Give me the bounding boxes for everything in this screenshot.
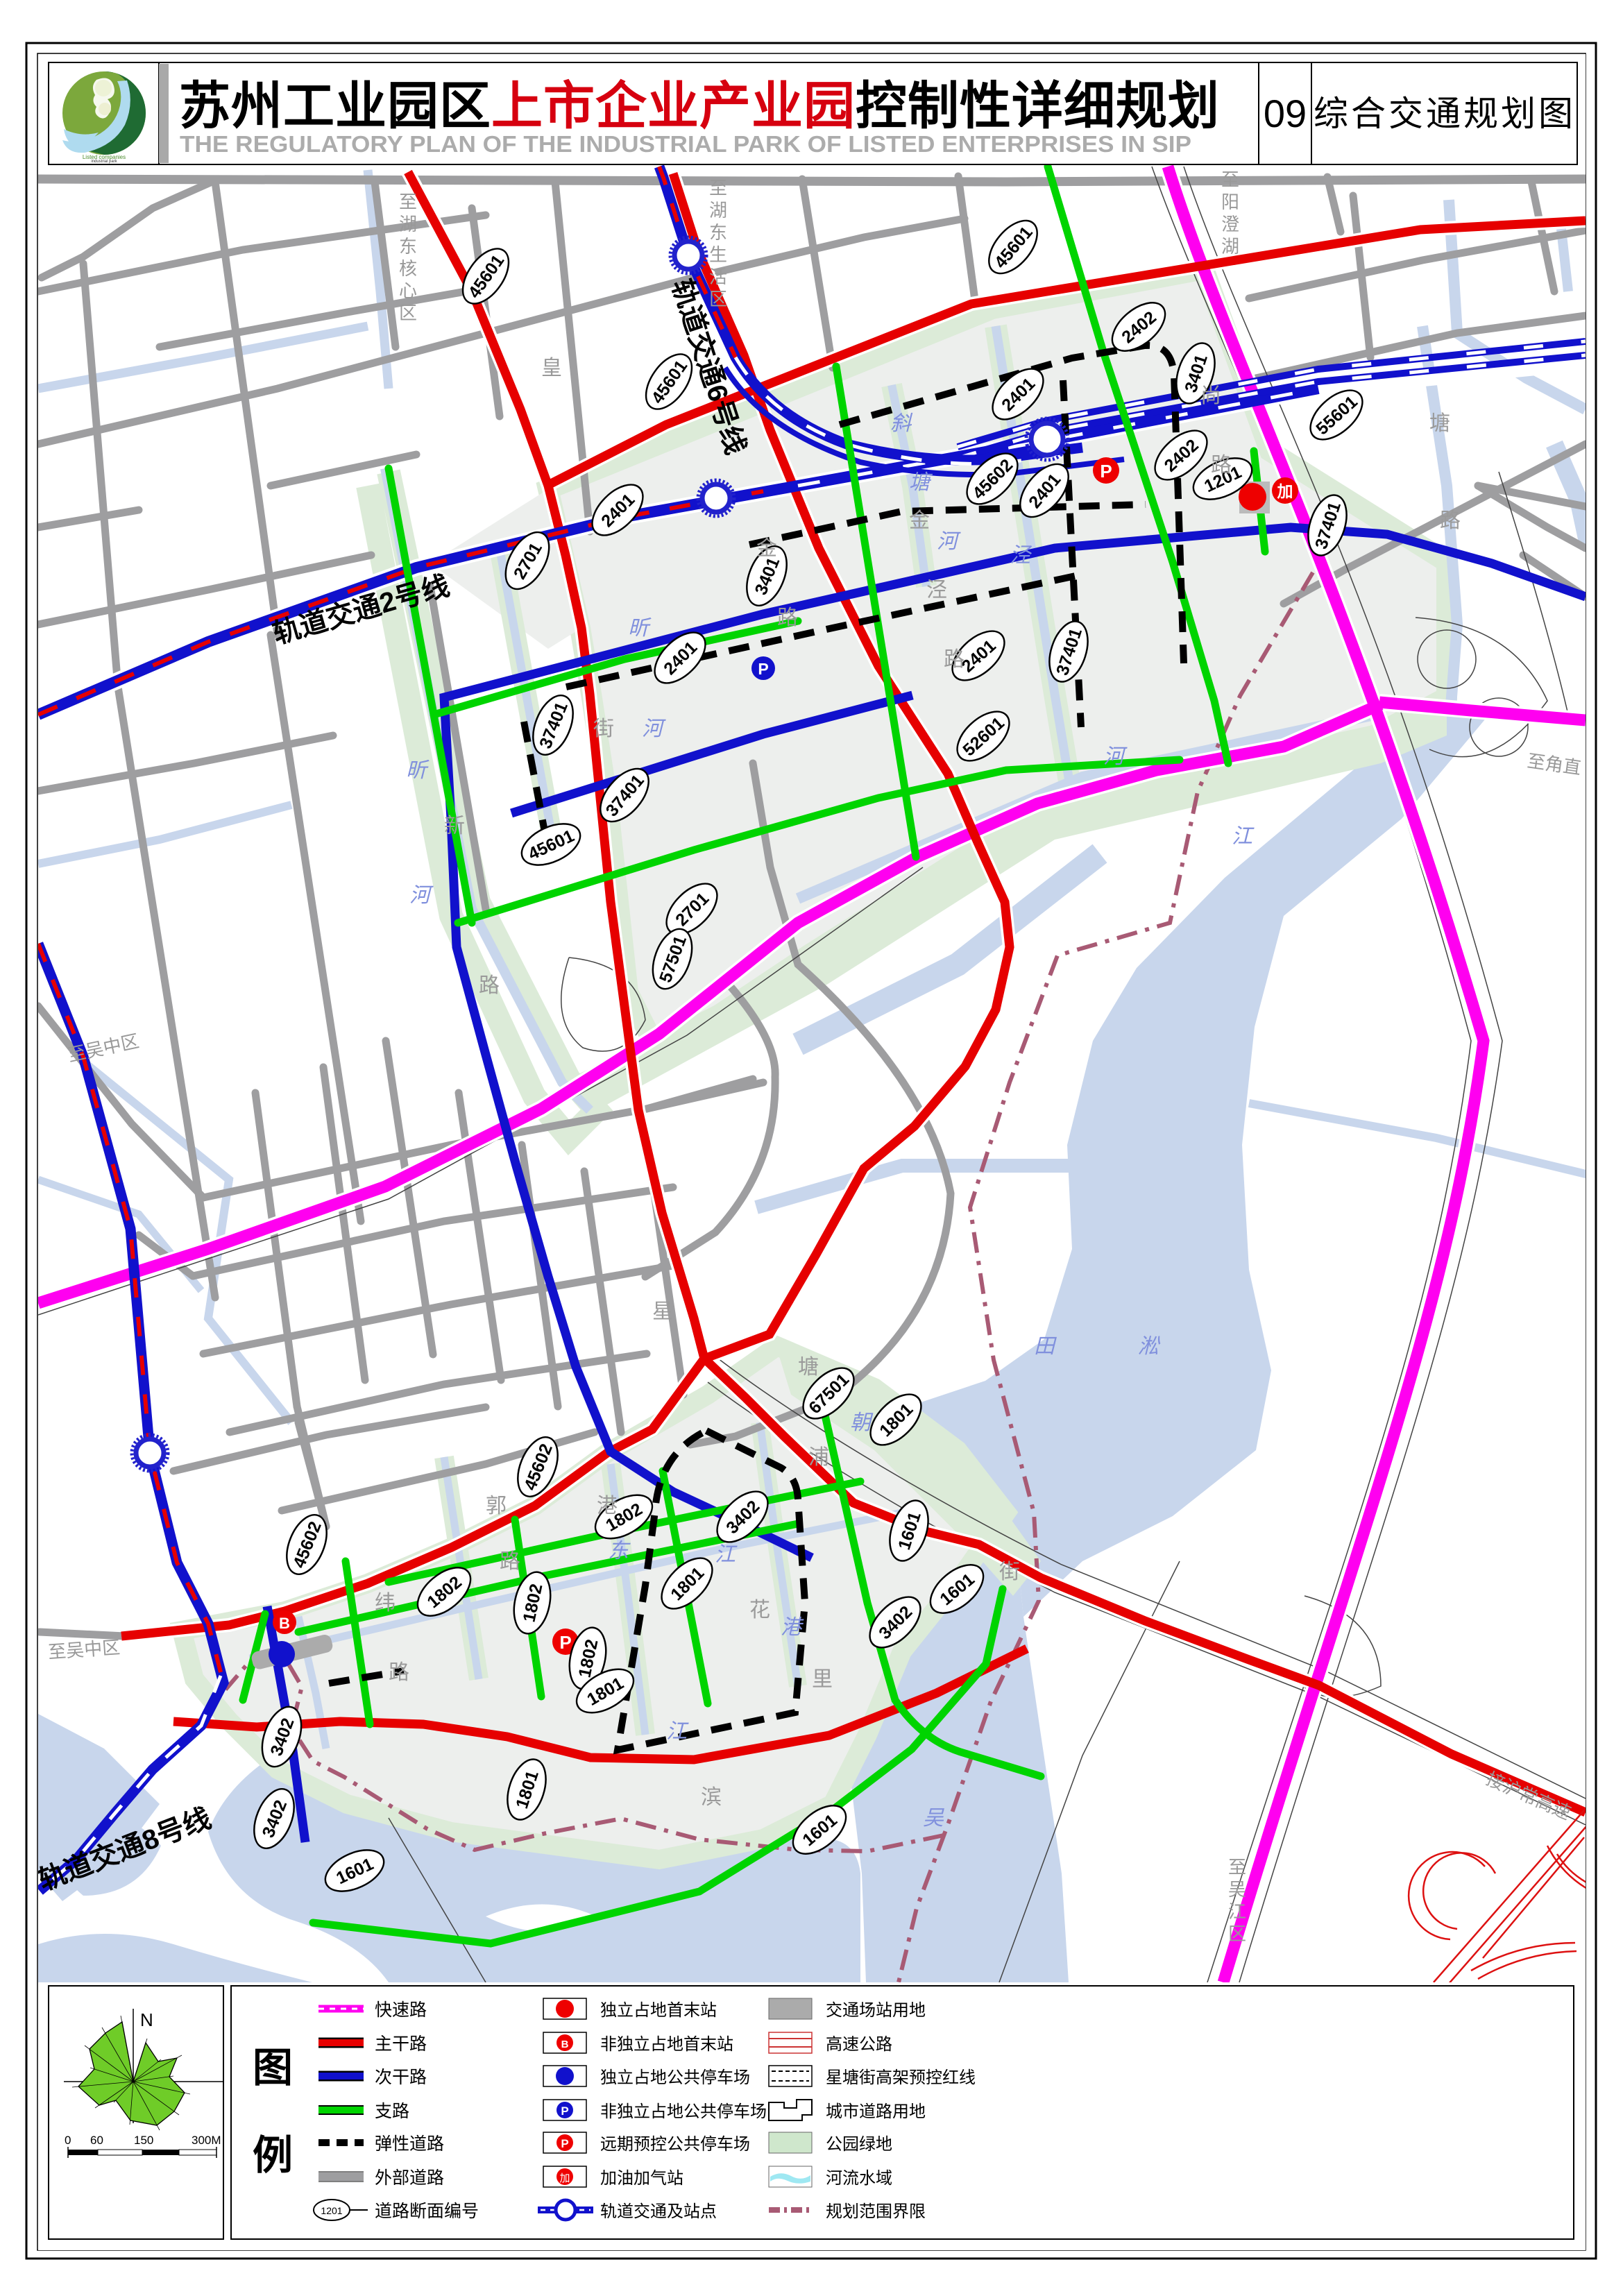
svg-text:0: 0: [65, 2134, 71, 2147]
svg-text:主干路: 主干路: [375, 2034, 427, 2054]
svg-text:尚: 尚: [1200, 384, 1221, 407]
svg-text:道路断面编号: 道路断面编号: [375, 2202, 479, 2221]
svg-text:淞: 淞: [1138, 1335, 1161, 1358]
svg-text:塘: 塘: [909, 471, 933, 494]
svg-text:轨道交通及站点: 轨道交通及站点: [600, 2202, 717, 2221]
svg-text:P: P: [1100, 461, 1112, 482]
svg-text:路: 路: [479, 974, 500, 997]
svg-text:快速路: 快速路: [375, 2000, 427, 2020]
svg-text:图: 图: [253, 2046, 293, 2091]
svg-text:支路: 支路: [375, 2102, 409, 2121]
svg-text:60: 60: [90, 2134, 103, 2147]
svg-text:远期预控公共停车场: 远期预控公共停车场: [600, 2135, 750, 2154]
svg-text:纬: 纬: [375, 1592, 396, 1615]
svg-text:昕: 昕: [628, 617, 652, 640]
svg-text:河: 河: [1103, 745, 1128, 768]
svg-text:路: 路: [777, 606, 798, 629]
svg-text:星塘街高架预控红线: 星塘街高架预控红线: [826, 2068, 976, 2087]
svg-text:田: 田: [1034, 1335, 1057, 1358]
svg-text:花: 花: [749, 1599, 770, 1622]
svg-text:港: 港: [781, 1616, 804, 1639]
svg-text:P: P: [561, 2104, 568, 2118]
svg-text:加油加气站: 加油加气站: [600, 2169, 683, 2188]
svg-text:独立占地公共停车场: 独立占地公共停车场: [600, 2068, 750, 2087]
svg-text:金: 金: [909, 509, 930, 532]
svg-text:P: P: [559, 1632, 571, 1653]
svg-text:塘: 塘: [798, 1356, 819, 1379]
svg-text:独立占地首末站: 独立占地首末站: [600, 2001, 717, 2020]
svg-text:外部道路: 外部道路: [375, 2168, 444, 2188]
svg-text:金: 金: [756, 537, 777, 560]
svg-text:B: B: [561, 2039, 569, 2050]
svg-text:P: P: [561, 2137, 568, 2150]
svg-text:朝: 朝: [850, 1411, 874, 1434]
svg-text:泾: 泾: [1010, 544, 1033, 567]
svg-text:皇: 皇: [541, 357, 562, 380]
svg-text:路: 路: [389, 1661, 409, 1684]
svg-text:09: 09: [1264, 92, 1307, 135]
svg-text:加: 加: [559, 2172, 570, 2184]
svg-text:次干路: 次干路: [375, 2068, 427, 2087]
svg-text:河: 河: [937, 530, 961, 553]
svg-text:公园绿地: 公园绿地: [826, 2135, 892, 2154]
svg-text:加: 加: [1277, 482, 1293, 500]
svg-text:P: P: [758, 660, 768, 678]
svg-text:里: 里: [812, 1668, 833, 1691]
svg-text:300M: 300M: [192, 2134, 221, 2147]
svg-text:例: 例: [253, 2133, 293, 2178]
svg-text:路: 路: [1211, 454, 1232, 477]
svg-text:泾: 泾: [926, 579, 947, 602]
svg-text:苏州工业园区上市企业产业园控制性详细规划: 苏州工业园区上市企业产业园控制性详细规划: [179, 77, 1220, 135]
svg-text:交通场站用地: 交通场站用地: [826, 2001, 926, 2020]
svg-text:路: 路: [500, 1550, 520, 1573]
svg-text:昕: 昕: [406, 759, 430, 782]
svg-text:斜: 斜: [890, 412, 913, 435]
svg-text:高速公路: 高速公路: [826, 2035, 892, 2054]
svg-text:江: 江: [666, 1720, 689, 1743]
svg-text:东: 东: [608, 1540, 631, 1563]
svg-text:郭: 郭: [486, 1495, 507, 1517]
svg-text:THE REGULATORY PLAN OF THE IND: THE REGULATORY PLAN OF THE INDUSTRIAL PA…: [180, 131, 1191, 157]
svg-text:河: 河: [409, 884, 434, 907]
svg-text:河: 河: [642, 717, 666, 740]
svg-text:非独立占地首末站: 非独立占地首末站: [600, 2035, 733, 2054]
svg-text:江: 江: [1232, 825, 1255, 848]
svg-text:非独立占地公共停车场: 非独立占地公共停车场: [600, 2102, 767, 2121]
svg-text:江: 江: [715, 1543, 738, 1566]
svg-text:industrial park: industrial park: [91, 160, 117, 164]
svg-text:滨: 滨: [701, 1786, 722, 1809]
svg-text:浦: 浦: [808, 1446, 829, 1469]
svg-text:1201: 1201: [321, 2205, 342, 2216]
svg-text:规划范围界限: 规划范围界限: [826, 2202, 926, 2221]
svg-text:弹性道路: 弹性道路: [375, 2134, 444, 2154]
svg-text:城市道路用地: 城市道路用地: [826, 2102, 926, 2121]
svg-text:塘: 塘: [1429, 412, 1450, 435]
svg-text:星: 星: [652, 1300, 673, 1323]
svg-text:新: 新: [444, 815, 465, 837]
svg-text:N: N: [140, 2009, 153, 2030]
svg-text:路: 路: [944, 648, 965, 671]
svg-text:路: 路: [1440, 509, 1461, 532]
svg-text:河流水域: 河流水域: [826, 2169, 892, 2188]
svg-text:街: 街: [593, 717, 614, 740]
svg-text:B: B: [279, 1615, 290, 1632]
svg-text:吴: 吴: [923, 1807, 944, 1830]
svg-text:港: 港: [597, 1495, 618, 1517]
svg-text:综合交通规划图: 综合交通规划图: [1314, 94, 1576, 133]
svg-text:150: 150: [134, 2134, 153, 2147]
svg-text:街: 街: [999, 1561, 1020, 1583]
